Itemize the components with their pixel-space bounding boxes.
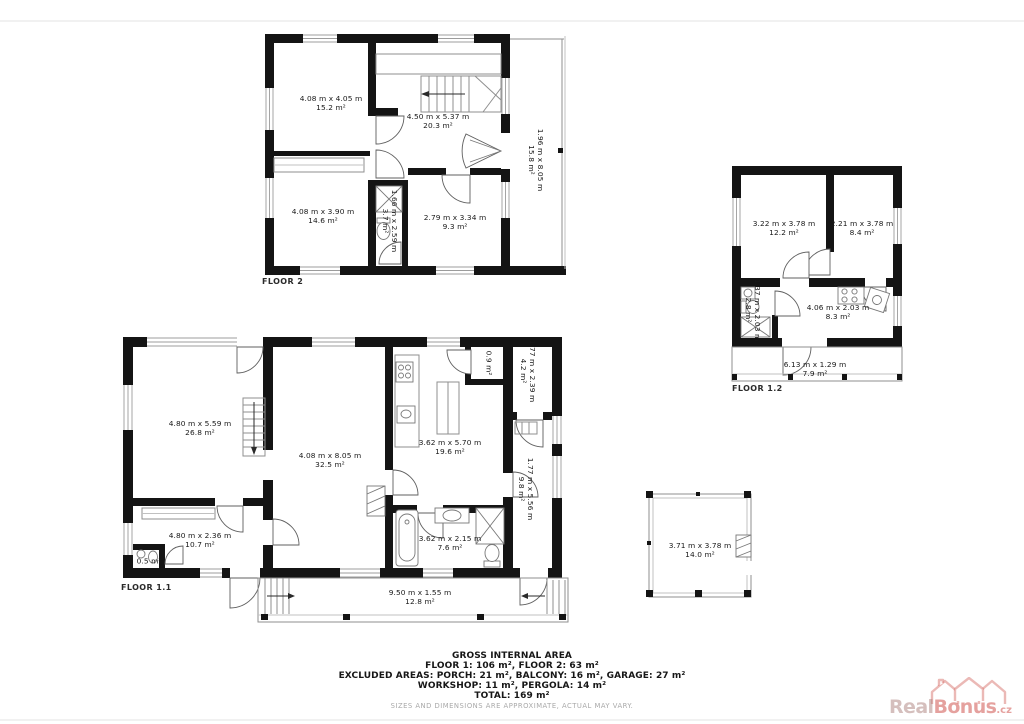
room-label: 3.62 m x 2.15 m 7.6 m² [419,534,482,552]
room-area: 14.6 m² [292,216,355,225]
room-label: 1.77 m x 2.39 m 4.2 m² [519,340,537,403]
floor2-label: FLOOR 2 [262,277,303,286]
room-dim: 9.50 m x 1.55 m [389,588,452,597]
room-dim: 2.79 m x 3.34 m [424,213,487,222]
room-dim: 1.77 m x 5.56 m [526,458,535,521]
porch-label: 6.13 m x 1.29 m 7.9 m² [784,360,847,378]
room-dim: 3.22 m x 3.78 m [753,219,816,228]
floor12-label: FLOOR 1.2 [732,384,783,393]
room-dim: 2.21 m x 3.78 m [831,219,894,228]
room-dim: 4.08 m x 8.05 m [299,451,362,460]
room-label: 1.77 m x 5.56 m 9.8 m² [517,458,535,521]
stove-icon [838,287,864,304]
floor2-walls [265,34,566,275]
room-label: 2.21 m x 3.78 m 8.4 m² [831,219,894,237]
room-label: 4.80 m x 2.36 m 10.7 m² [169,531,232,549]
room-area: 32.5 m² [299,460,362,469]
room-area: 0.9 m² [485,351,494,376]
room-area: 7.6 m² [419,543,482,552]
room-label: 3.62 m x 5.70 m 19.6 m² [419,438,482,456]
room-dim: 1.37 m x 2.03 m [753,279,762,342]
room-label: 0.5 m² [137,557,162,566]
floor11-plan [115,330,585,630]
floor11-label: FLOOR 1.1 [121,583,172,592]
room-dim: 1.96 m x 8.05 m [536,129,545,192]
room-area: 3.7 m² [381,190,390,253]
wardrobe-icon [274,158,364,172]
watermark-text: RealBonus.cz [889,696,1012,722]
grill-icon [736,535,751,557]
room-area: 12.2 m² [753,228,816,237]
room-area: 15.8 m² [527,129,536,192]
summary-excluded: EXCLUDED AREAS: PORCH: 21 m², BALCONY: 1… [0,671,1024,681]
summary-excluded2: WORKSHOP: 11 m², PERGOLA: 14 m² [0,681,1024,691]
stairs-icon [376,54,501,112]
room-area: 15.2 m² [300,103,363,112]
room-area: 9.3 m² [424,222,487,231]
room-dim: 3.62 m x 2.15 m [419,534,482,543]
stove-icon [396,362,413,382]
summary-total: TOTAL: 169 m² [0,691,1024,701]
room-dim: 4.80 m x 5.59 m [169,419,232,428]
room-dim: 1.66 m x 2.59 m [390,190,399,253]
kitchen-island [437,382,459,434]
room-dim: 6.13 m x 1.29 m [784,360,847,369]
summary-title: GROSS INTERNAL AREA [0,651,1024,661]
room-label: 3.22 m x 3.78 m 12.2 m² [753,219,816,237]
room-label: 1.96 m x 8.05 m 15.8 m² [527,129,545,192]
room-dim: 3.71 m x 3.78 m [669,541,732,550]
room-area: 0.5 m² [137,557,162,566]
watermark-tld: .cz [996,705,1012,716]
room-label: 4.08 m x 4.05 m 15.2 m² [300,94,363,112]
scan-artifact-bottom [0,719,1024,721]
room-dim: 4.08 m x 4.05 m [300,94,363,103]
room-label: 4.80 m x 5.59 m 26.8 m² [169,419,232,437]
room-area: 14.0 m² [669,550,732,559]
room-label: 2.79 m x 3.34 m 9.3 m² [424,213,487,231]
room-area: 19.6 m² [419,447,482,456]
fireplace-icon [367,486,385,516]
area-summary: GROSS INTERNAL AREA FLOOR 1: 106 m², FLO… [0,651,1024,711]
room-area: 2.8 m² [744,279,753,342]
room-dim: 4.06 m x 2.03 m [807,303,870,312]
kitchen-sink-icon [397,406,415,423]
room-dim: 1.77 m x 2.39 m [528,340,537,403]
watermark-bonus: Bonus [933,696,996,718]
room-label: 4.50 m x 5.37 m 20.3 m² [407,112,470,130]
watermark-real: Real [889,696,933,718]
room-area: 9.8 m² [517,458,526,521]
room-area: 8.3 m² [807,312,870,321]
room-area: 8.4 m² [831,228,894,237]
porch-label: 9.50 m x 1.55 m 12.8 m² [389,588,452,606]
room-label: 1.66 m x 2.59 m 3.7 m² [381,190,399,253]
room-dim: 3.62 m x 5.70 m [419,438,482,447]
room-label: 1.37 m x 2.03 m 2.8 m² [744,279,762,342]
room-area: 12.8 m² [389,597,452,606]
room-label: 4.08 m x 3.90 m 14.6 m² [292,207,355,225]
floorplan-canvas: 4.08 m x 4.05 m 15.2 m² 4.50 m x 5.37 m … [0,0,1024,724]
summary-disclaimer: SIZES AND DIMENSIONS ARE APPROXIMATE, AC… [0,702,1024,711]
realbonus-watermark: RealBonus.cz [889,677,1021,721]
toilet-icon [484,545,500,568]
room-dim: 4.80 m x 2.36 m [169,531,232,540]
room-label: 3.71 m x 3.78 m 14.0 m² [669,541,732,559]
room-label: 0.9 m² [485,351,494,376]
room-area: 20.3 m² [407,121,470,130]
bathtub-icon [396,510,418,566]
room-label: 4.08 m x 8.05 m 32.5 m² [299,451,362,469]
room-area: 4.2 m² [519,340,528,403]
vanity-sink-icon [435,508,469,523]
room-dim: 4.50 m x 5.37 m [407,112,470,121]
room-area: 26.8 m² [169,428,232,437]
room-dim: 4.08 m x 3.90 m [292,207,355,216]
room-label: 4.06 m x 2.03 m 8.3 m² [807,303,870,321]
floor2-plan [258,30,570,283]
scan-artifact-top [0,20,1024,22]
room-area: 10.7 m² [169,540,232,549]
room-area: 7.9 m² [784,369,847,378]
wardrobe-icon [142,508,215,519]
stairs-icon [243,398,265,456]
summary-floors: FLOOR 1: 106 m², FLOOR 2: 63 m² [0,661,1024,671]
